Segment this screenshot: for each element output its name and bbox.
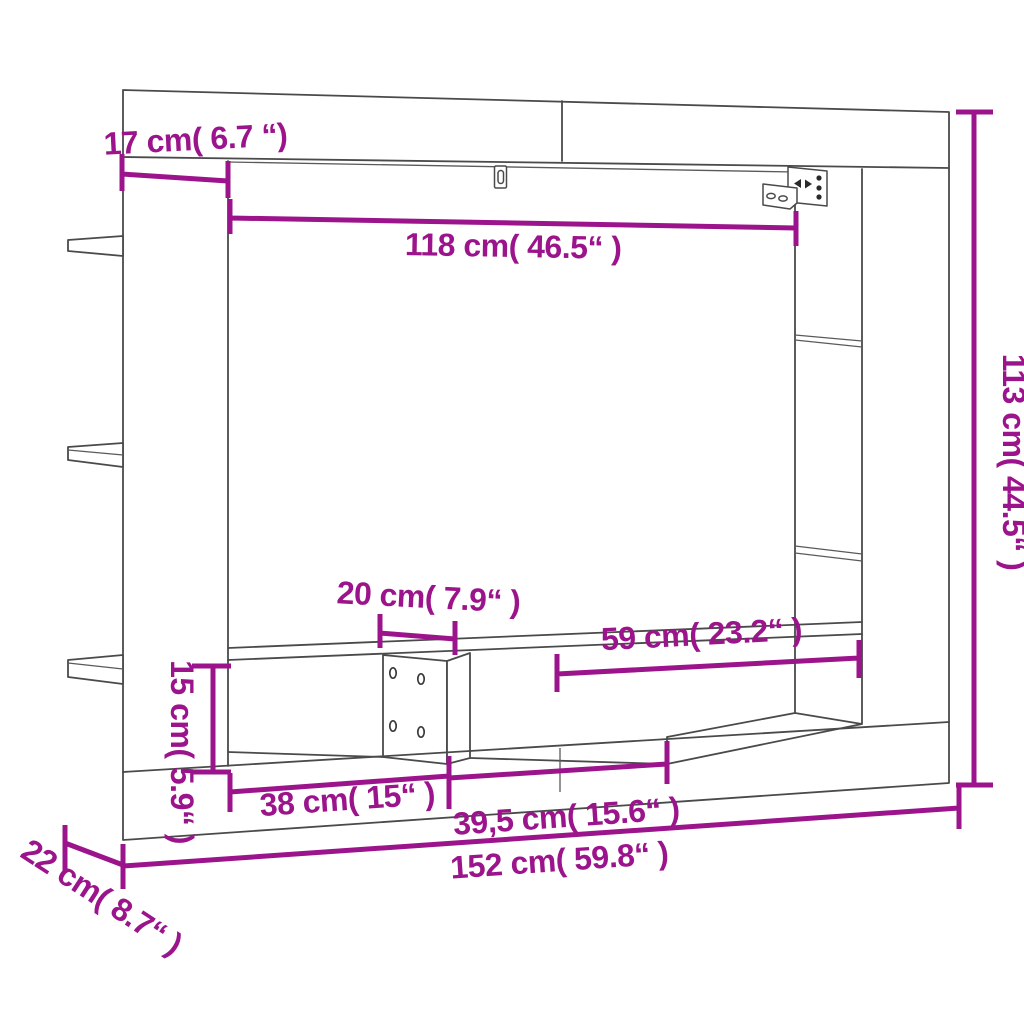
shelf-pin-hole	[418, 674, 424, 684]
dimension-side-depth: 22 cm( 8.7“ )	[15, 825, 189, 962]
dimension-label: 118 cm( 46.5“ )	[405, 226, 622, 266]
left-shelf-top	[68, 236, 123, 256]
dimension-label: 22 cm( 8.7“ )	[15, 832, 189, 962]
dimension-line	[956, 112, 993, 785]
shelf-pin-hole	[390, 721, 396, 731]
left-shelf-middle	[68, 443, 123, 467]
left-shelf-bottom	[68, 655, 123, 684]
middle-divider-panel-side	[447, 653, 470, 764]
diagram-svg: 17 cm( 6.7 “) 118 cm( 46.5“ ) 113 cm( 44…	[0, 0, 1024, 1024]
dimension-total-height: 113 cm( 44.5“ )	[956, 112, 1024, 785]
dimension-label: 113 cm( 44.5“ )	[996, 354, 1024, 571]
keyhole-slot-icon	[495, 166, 507, 188]
product-dimension-diagram: 17 cm( 6.7 “) 118 cm( 46.5“ ) 113 cm( 44…	[0, 0, 1024, 1024]
shelf-pin-hole	[390, 668, 396, 678]
dimension-label: 15 cm( 5.9“ )	[164, 660, 200, 844]
shelf-pin-hole	[418, 727, 424, 737]
